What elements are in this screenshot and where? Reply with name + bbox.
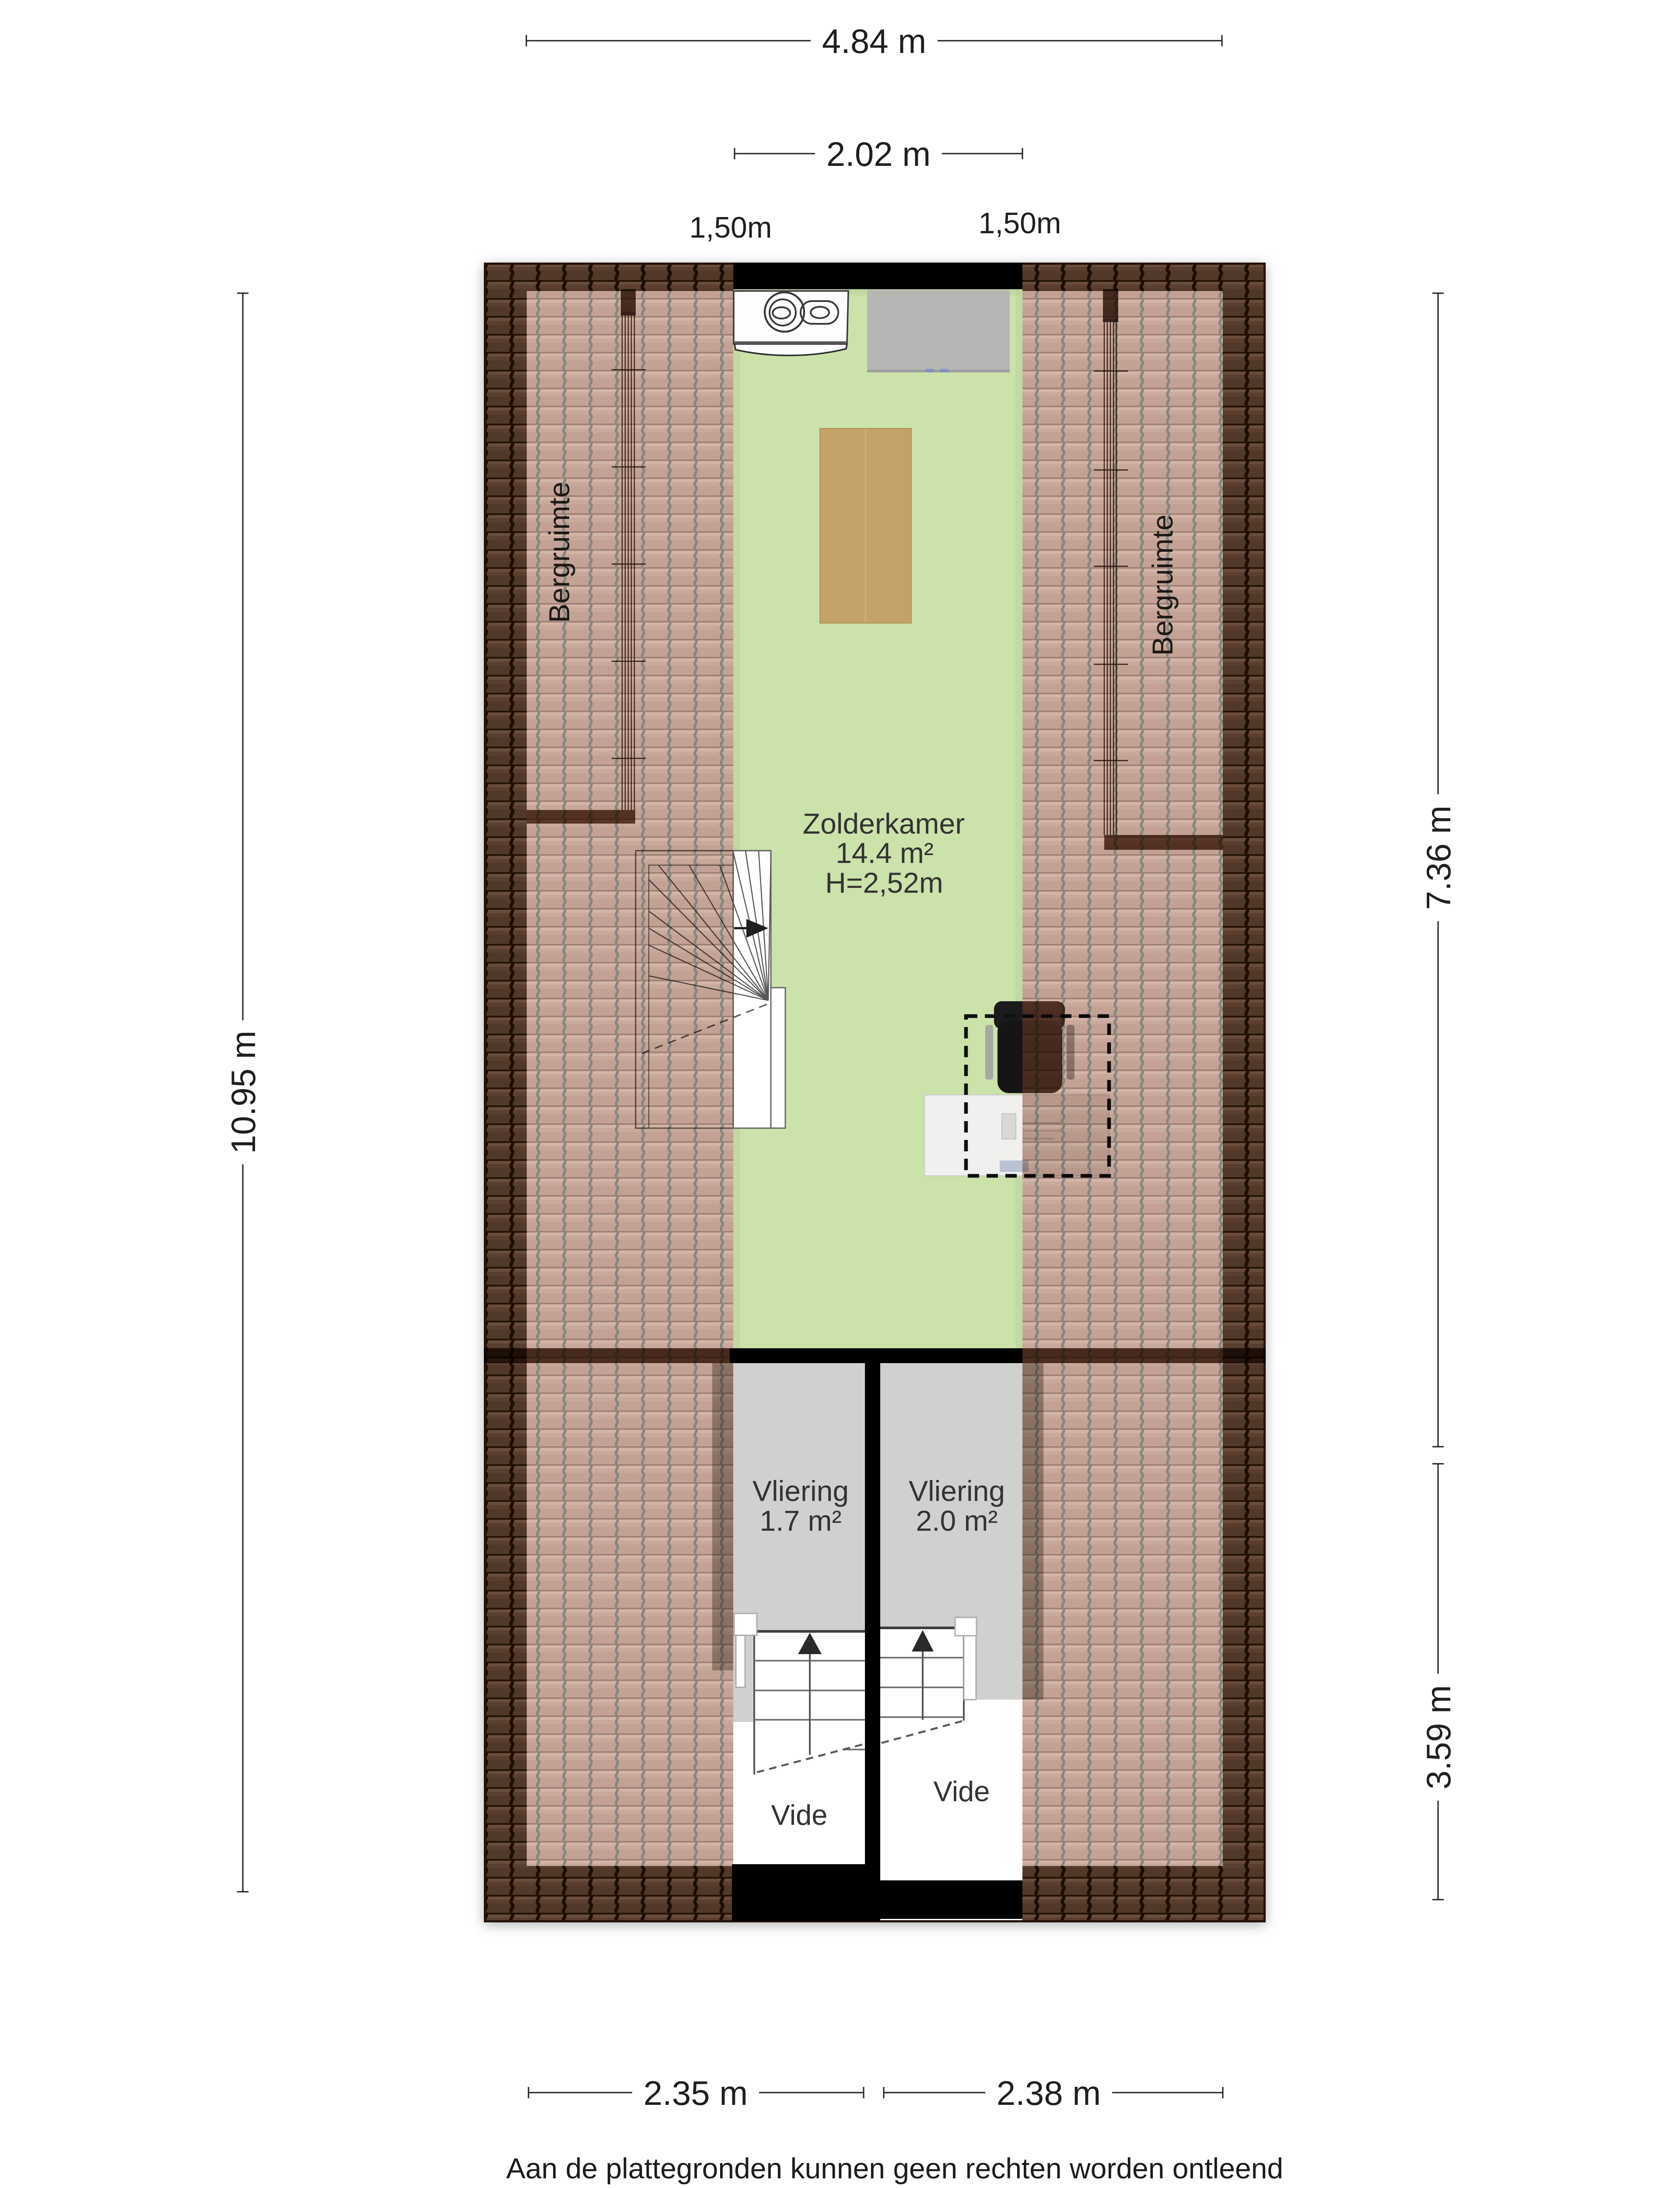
svg-text:Vide: Vide — [934, 1775, 990, 1807]
svg-text:Vliering: Vliering — [909, 1475, 1005, 1507]
svg-text:H=2,52m: H=2,52m — [825, 866, 943, 899]
svg-text:Zolderkamer: Zolderkamer — [803, 807, 965, 840]
svg-text:1,50m: 1,50m — [979, 207, 1061, 240]
svg-text:4.84 m: 4.84 m — [822, 22, 926, 60]
svg-text:Vide: Vide — [771, 1799, 828, 1831]
svg-text:1.7 m²: 1.7 m² — [759, 1504, 841, 1537]
svg-text:© Zibber www.zibber.nl: © Zibber www.zibber.nl — [744, 2185, 1048, 2188]
svg-text:2.38 m: 2.38 m — [997, 2074, 1101, 2112]
svg-text:Vliering: Vliering — [752, 1475, 849, 1507]
svg-text:Aan de plattegronden kunnen ge: Aan de plattegronden kunnen geen rechten… — [506, 2152, 1283, 2184]
svg-text:3.59 m: 3.59 m — [1419, 1685, 1458, 1789]
svg-text:1,50m: 1,50m — [689, 211, 772, 244]
svg-text:2.0 m²: 2.0 m² — [916, 1504, 997, 1537]
svg-text:14.4 m²: 14.4 m² — [836, 837, 934, 869]
svg-text:2.35 m: 2.35 m — [644, 2074, 748, 2112]
svg-text:2.02 m: 2.02 m — [826, 135, 931, 173]
svg-text:7.36 m: 7.36 m — [1419, 806, 1458, 910]
svg-text:10.95 m: 10.95 m — [224, 1031, 262, 1154]
